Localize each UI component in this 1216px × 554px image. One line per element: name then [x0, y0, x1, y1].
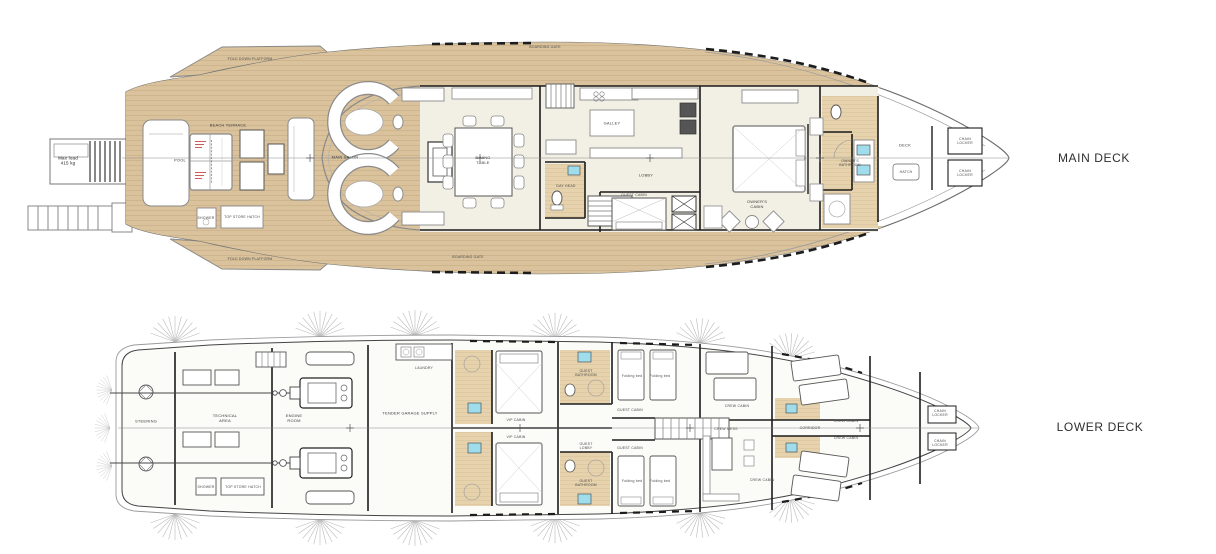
label-vip-cabin-starboard: VIP CABIN [506, 435, 525, 439]
guest-bed-pillows [616, 222, 662, 229]
mess-table [712, 438, 732, 470]
label-day-head: DAY HEAD [556, 184, 575, 188]
label-fore-deck: DECK [899, 144, 911, 149]
galley-counter-aft [546, 140, 576, 154]
round-table [746, 216, 759, 229]
label-guest-cabin-starboard: GUEST CABIN [617, 446, 643, 450]
label-beach-terrace: BEACH TERRACE [210, 124, 247, 129]
pillow-2 [796, 160, 805, 186]
label-lower-chain-locker-starboard: CHAIN LOCKER [932, 439, 948, 447]
label-chain-locker-starboard: CHAIN LOCKER [957, 169, 973, 177]
label-folding-bed-2: Folding bed [622, 374, 643, 378]
label-folding-bed-4: Folding bed [650, 479, 671, 483]
label-laundry: LAUNDRY [415, 366, 433, 370]
laundry [396, 344, 452, 360]
vip-sink-starboard [468, 443, 481, 453]
vip-sink-port [468, 403, 481, 413]
label-guest-lobby: GUEST LOBBY [579, 442, 592, 450]
owners-dresser [742, 90, 798, 103]
toilet [552, 191, 562, 205]
label-fold-platform-top: FOLD DOWN PLATFORM [228, 57, 273, 61]
deck-plans-canvas: FOLD DOWN PLATFORM FOLD DOWN PLATFORM BO… [0, 0, 1216, 554]
label-engine-room: ENGINE ROOM [286, 414, 303, 424]
mess-sofa-bottom [703, 494, 739, 501]
lower-deck-plan [94, 310, 979, 546]
pool [190, 134, 232, 190]
nightstand-1 [810, 118, 823, 135]
label-galley: GALLEY [604, 122, 621, 127]
label-tender-garage: TENDER GARAGE SUPPLY [382, 412, 437, 417]
galley-counter-top [580, 88, 638, 100]
label-corridor: CORRIDOR [800, 426, 821, 430]
label-pool: POOL [174, 159, 186, 164]
freezer [680, 120, 696, 134]
pillow-1 [796, 130, 805, 156]
label-steering: STEERING [135, 420, 157, 425]
label-main-salon: MAIN SALON [332, 156, 359, 161]
label-boarding-gate-top: BOARDING GATE [529, 45, 561, 49]
muffler-starboard [306, 491, 354, 504]
shower [824, 194, 850, 224]
lower-deck-title: LOWER DECK [1057, 420, 1144, 434]
engine-room-stairs [256, 352, 286, 367]
label-lobby: LOBBY [639, 174, 653, 179]
label-deck-hatch: HATCH [900, 170, 913, 174]
stern-ladder [28, 203, 132, 232]
galley-stairs [546, 84, 574, 108]
label-vip-cabin-port: VIP CABIN [506, 418, 525, 422]
label-guest-bathroom-starboard: GUEST BATHROOM [575, 479, 597, 487]
label-fold-platform-bottom: FOLD DOWN PLATFORM [228, 257, 273, 261]
label-owners-cabin: OWNER'S CABIN [747, 200, 767, 210]
cockpit-console-starboard [402, 212, 444, 225]
label-lower-shower: SHOWER [198, 485, 215, 489]
nightstand-2 [810, 184, 823, 201]
ga-plan-drawing [0, 0, 1216, 554]
fridge [680, 103, 696, 117]
label-crew-cabin-fwd-port: CREW CABIN [834, 419, 858, 423]
mess-sofa-side [703, 436, 710, 494]
label-owners-bathroom: OWNER'S BATHROOM [839, 159, 861, 167]
label-shower: SHOWER [198, 216, 215, 220]
label-boarding-gate-bottom: BOARDING GATE [452, 255, 484, 259]
main-deck-title: MAIN DECK [1058, 151, 1130, 165]
label-guest-bathroom-port: GUEST BATHROOM [575, 369, 597, 377]
label-crew-cabin-fwd-starboard: CREW CABIN [834, 436, 858, 440]
label-lower-top-store-hatch: TOP STORE HATCH [225, 485, 261, 489]
galley-sideboard [590, 148, 682, 158]
muffler-port [306, 352, 354, 365]
sideboard [452, 88, 532, 99]
label-crew-cabin-aft-starboard: CREW CABIN [750, 478, 774, 482]
cockpit-console-port [402, 88, 444, 101]
toilet [831, 105, 841, 119]
label-crew-cabin-aft: CREW CABIN [725, 404, 749, 408]
label-crew-mess: CREW MESS [714, 427, 737, 431]
label-guest-cabin-main: GUEST CABIN [621, 193, 647, 197]
label-technical-area: TECHNICAL AREA [213, 414, 237, 424]
label-chain-locker-port: CHAIN LOCKER [957, 137, 973, 145]
label-max-load: Max load 415 kg [58, 156, 78, 167]
sink-1 [857, 145, 870, 155]
sink [568, 166, 580, 175]
label-lower-chain-locker-port: CHAIN LOCKER [932, 409, 948, 417]
label-dining-table: DINING TABLE [475, 156, 490, 166]
label-folding-bed-1: Folding bed [650, 374, 671, 378]
label-top-store-hatch: TOP STORE HATCH [224, 215, 260, 219]
label-guest-cabin-port: GUEST CABIN [617, 408, 643, 412]
vanity-desk [704, 206, 722, 228]
label-folding-bed-3: Folding bed [622, 479, 643, 483]
